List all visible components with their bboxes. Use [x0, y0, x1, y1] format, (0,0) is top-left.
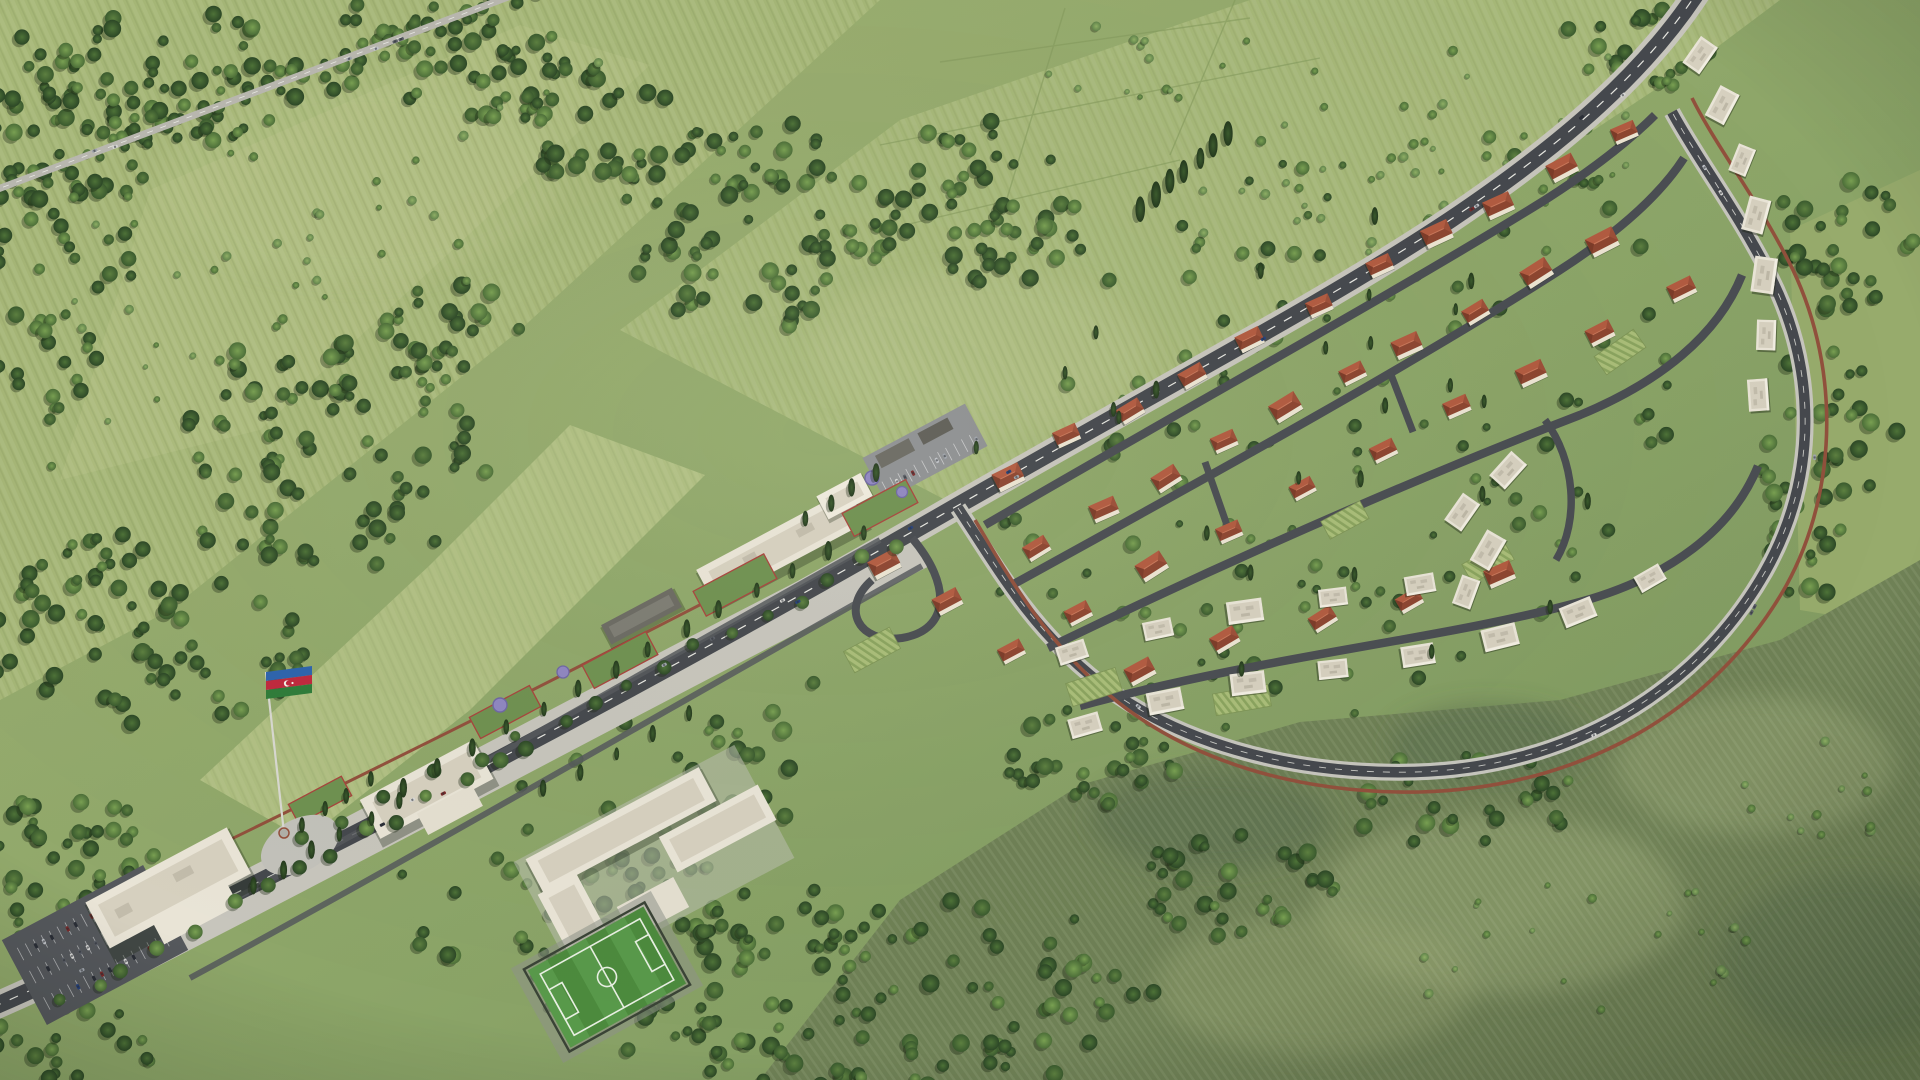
scene-svg	[0, 0, 1920, 1080]
aerial-render	[0, 0, 1920, 1080]
lighting-vignette	[0, 0, 1920, 1080]
